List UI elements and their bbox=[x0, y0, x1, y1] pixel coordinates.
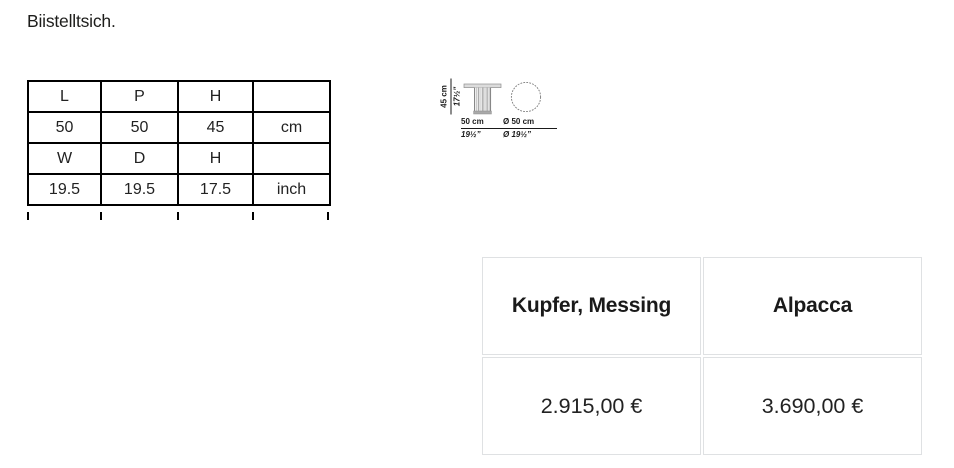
price-table: Kupfer, Messing Alpacca 2.915,00 € 3.690… bbox=[480, 255, 924, 457]
table-edge-tick bbox=[252, 212, 254, 220]
dim-label-cell: H bbox=[178, 81, 253, 112]
dim-unit-cell: cm bbox=[253, 112, 330, 143]
table-row: 19.5 19.5 17.5 inch bbox=[28, 174, 330, 205]
dim-unit-cell bbox=[253, 143, 330, 174]
dim-unit-cell: inch bbox=[253, 174, 330, 205]
dim-unit-cell bbox=[253, 81, 330, 112]
table-edge-tick bbox=[327, 212, 329, 220]
table-edge-tick bbox=[27, 212, 29, 220]
spec-sheet-page: Biistelltsich. L P H 50 50 45 cm W D H bbox=[0, 0, 954, 468]
diameter-cm-label: Ø 50 cm bbox=[503, 117, 557, 129]
dim-value-cell: 45 bbox=[178, 112, 253, 143]
height-cm-label: 45 cm bbox=[440, 79, 452, 115]
table-row: W D H bbox=[28, 143, 330, 174]
dim-value-cell: 19.5 bbox=[101, 174, 178, 205]
width-inch-label: 19½” bbox=[461, 129, 505, 140]
dim-value-cell: 17.5 bbox=[178, 174, 253, 205]
width-cm-label: 50 cm bbox=[461, 117, 505, 129]
dim-value-cell: 19.5 bbox=[28, 174, 101, 205]
height-inch-label: 17½” bbox=[451, 79, 462, 115]
material-header-cell: Alpacca bbox=[703, 257, 922, 355]
price-cell: 3.690,00 € bbox=[703, 357, 922, 455]
width-dimension-label: 50 cm 19½” bbox=[461, 117, 505, 139]
dim-value-cell: 50 bbox=[28, 112, 101, 143]
dim-value-cell: 50 bbox=[101, 112, 178, 143]
table-edge-tick bbox=[100, 212, 102, 220]
technical-drawing: 45 cm 17½” 50 cm 19½” Ø 50 cm Ø 19½ bbox=[438, 76, 568, 148]
dim-label-cell: H bbox=[178, 143, 253, 174]
diameter-dimension-label: Ø 50 cm Ø 19½” bbox=[503, 117, 557, 139]
dim-label-cell: W bbox=[28, 143, 101, 174]
dim-label-cell: P bbox=[101, 81, 178, 112]
dim-label-cell: L bbox=[28, 81, 101, 112]
table-row: 2.915,00 € 3.690,00 € bbox=[482, 357, 922, 455]
dim-label-cell: D bbox=[101, 143, 178, 174]
table-row: L P H bbox=[28, 81, 330, 112]
page-title: Biistelltsich. bbox=[27, 11, 116, 32]
table-row: Kupfer, Messing Alpacca bbox=[482, 257, 922, 355]
price-cell: 2.915,00 € bbox=[482, 357, 701, 455]
diameter-inch-label: Ø 19½” bbox=[503, 129, 557, 140]
table-row: 50 50 45 cm bbox=[28, 112, 330, 143]
height-dimension-label: 45 cm 17½” bbox=[440, 79, 459, 115]
dimensions-table: L P H 50 50 45 cm W D H 19.5 19.5 17.5 bbox=[27, 80, 331, 206]
table-front-view-icon bbox=[463, 80, 502, 116]
material-header-cell: Kupfer, Messing bbox=[482, 257, 701, 355]
table-edge-tick bbox=[177, 212, 179, 220]
table-top-view-icon bbox=[510, 81, 542, 113]
